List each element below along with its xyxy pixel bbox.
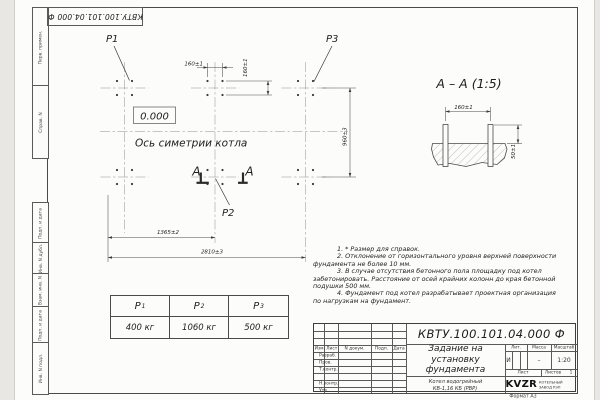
load-symbol: P xyxy=(253,301,259,312)
scale-label: Масштаб xyxy=(555,345,574,350)
titleblock-line xyxy=(512,351,513,369)
dim-bolt-pitch-v: 160±1 xyxy=(243,58,249,77)
sheets-value: 1 xyxy=(567,370,576,375)
logo-subtitle-line: ЗАВОД РЭП xyxy=(539,386,563,389)
load-table-value-p1: 400 кг xyxy=(111,317,170,338)
plan-load-label-p2: P2 xyxy=(222,208,234,219)
section-dim-bolt-pitch: 160±1 xyxy=(454,105,473,111)
titleblock-line xyxy=(520,351,521,369)
load-leader-lines xyxy=(114,46,332,205)
load-table-value-p3: 500 кг xyxy=(229,317,288,338)
load-table-value-p2: 1060 кг xyxy=(170,317,229,338)
dim-left-to-mid: 1365±2 xyxy=(157,230,180,236)
row-nkontr: Н.контр. xyxy=(318,381,337,386)
document-title-line: Задание на xyxy=(428,344,483,355)
titleblock-line xyxy=(541,369,542,376)
load-sub: 2 xyxy=(201,303,205,310)
row-razrab: Разраб. xyxy=(318,353,337,358)
elevation-value: 0.000 xyxy=(140,112,169,123)
section-mark-letter-left: А xyxy=(191,165,200,179)
drawing-scan: Перв. примен. Справ. N Подп. и дата Инв.… xyxy=(0,0,600,400)
load-table-header-p3: P3 xyxy=(229,296,288,317)
product-name-line: Котел водогрейный xyxy=(429,378,483,384)
boiler-axis-label: Ось симетрии котла xyxy=(135,138,247,150)
document-title-line: фундамента xyxy=(426,365,486,376)
sheets-label: Листов xyxy=(544,370,561,375)
section-mark-letter-right: А xyxy=(244,165,253,179)
plan-load-label-p1: P1 xyxy=(106,34,118,45)
mass-value: – xyxy=(527,351,551,369)
logo-subtitle: КОТЕЛЬНЫЙ ЗАВОД РЭП xyxy=(539,380,578,390)
plan-centerlines xyxy=(100,62,348,262)
section-dim-bolt-height: 50±1 xyxy=(511,144,517,159)
dim-width: 960±3 xyxy=(343,127,349,146)
col-izm-list: Изм. Лист xyxy=(317,346,334,351)
anchor-bolt-left xyxy=(443,125,448,167)
titleblock-designation: КВТУ.100.101.04.000 Ф xyxy=(406,324,577,344)
product-name: Котел водогрейный КВ-1,16 КБ (РВР) xyxy=(406,376,505,393)
manufacturer-logo: KVZR КОТЕЛЬНЫЙ ЗАВОД РЭП xyxy=(505,376,577,393)
document-title-line: установку xyxy=(431,355,480,366)
logo-subtitle-line: КОТЕЛЬНЫЙ xyxy=(539,381,563,384)
mass-label: Масса xyxy=(530,345,547,350)
format-label: Формат А3 xyxy=(495,393,551,399)
load-table: P1 P2 P3 400 кг 1060 кг 500 кг xyxy=(110,295,289,339)
load-table-header-p2: P2 xyxy=(170,296,229,317)
logo-text: KVZR xyxy=(506,379,538,390)
col-ndoc: N докум. xyxy=(343,346,367,351)
load-symbol: P xyxy=(135,301,141,312)
load-symbol: P xyxy=(194,301,200,312)
load-sub: 3 xyxy=(260,303,264,310)
row-prov: Пров. xyxy=(318,360,337,365)
dim-bolt-pitch-h: 160±1 xyxy=(184,62,203,68)
load-table-header-p1: P1 xyxy=(111,296,170,317)
sheet-label: Лист xyxy=(510,370,536,375)
lit-value: И xyxy=(505,351,512,369)
dim-overall: 2810±3 xyxy=(201,250,224,256)
titleblock-line xyxy=(314,373,406,374)
anchor-bolt-right xyxy=(488,125,493,167)
row-tkontr: Т.контр. xyxy=(318,367,337,372)
section-cut-strokes xyxy=(197,173,248,183)
load-sub: 1 xyxy=(142,303,146,310)
section-view-title: А – А (1:5) xyxy=(435,76,501,91)
lit-label: Лит. xyxy=(508,345,524,350)
titleblock-line xyxy=(314,331,406,332)
col-podp: Подп. xyxy=(374,346,389,351)
note-line: по нагрузкам на фундамент. xyxy=(313,298,577,305)
notes-block: 1. * Размер для справок. 2. Отклонение о… xyxy=(313,246,577,305)
col-data: Дата xyxy=(394,346,404,351)
titleblock-line xyxy=(314,338,406,339)
document-title: Задание на установку фундамента xyxy=(406,344,505,376)
title-block: Изм. Лист N докум. Подп. Дата Разраб. Пр… xyxy=(313,323,576,392)
row-utv: Утв. xyxy=(318,388,337,392)
product-name-line: КВ-1,16 КБ (РВР) xyxy=(433,385,477,391)
plan-load-label-p3: P3 xyxy=(326,34,338,45)
scale-value: 1:20 xyxy=(551,351,577,369)
